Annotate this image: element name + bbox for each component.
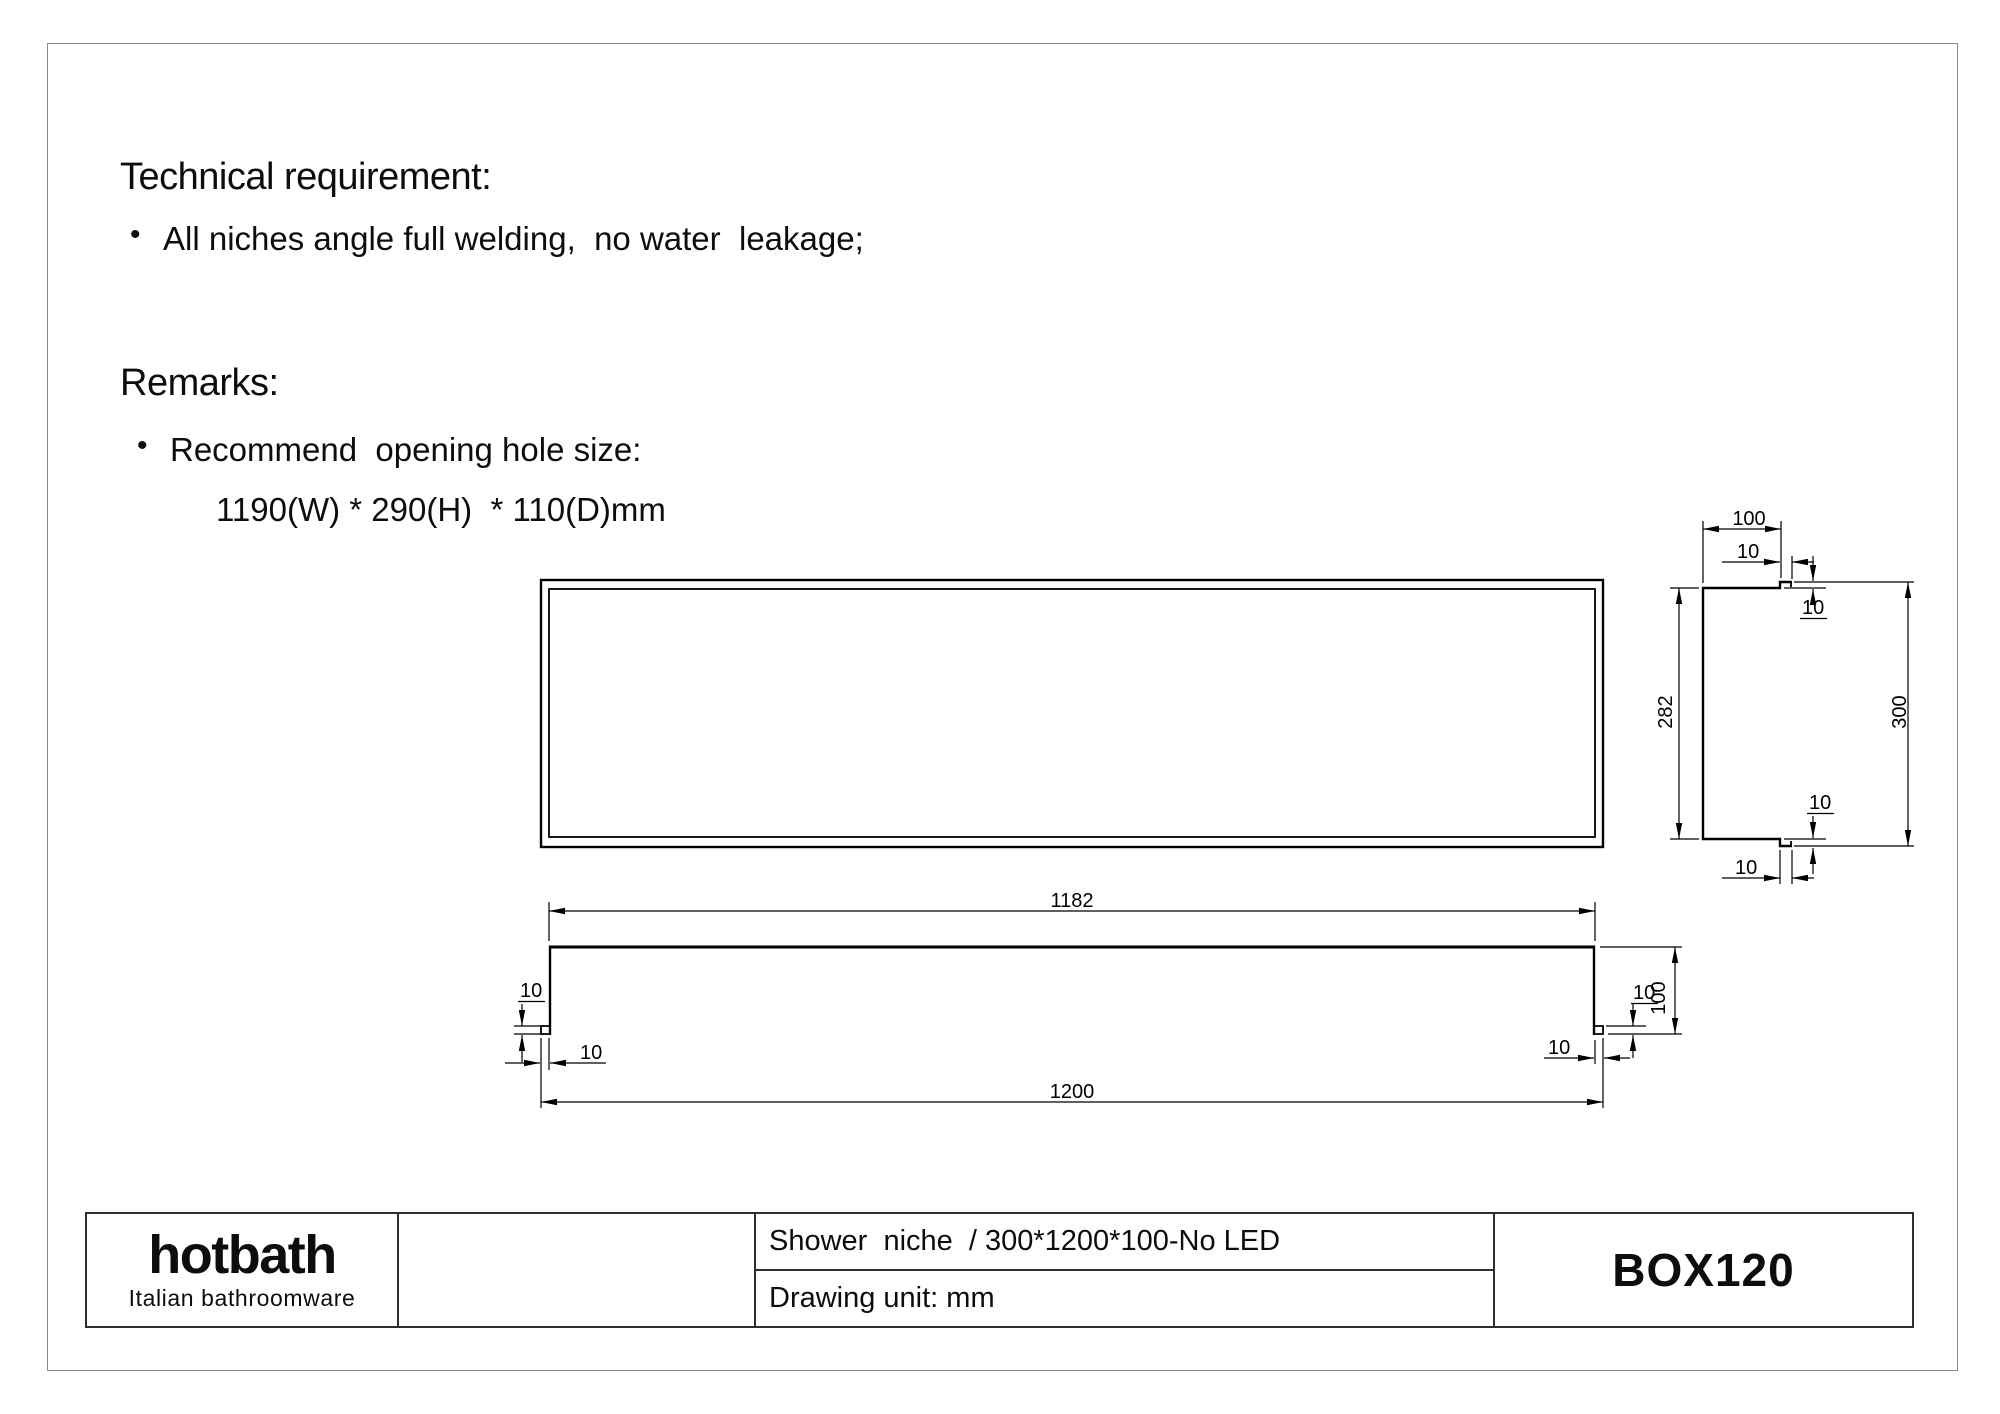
- dimension-label: 100: [1732, 508, 1765, 530]
- side-section-view: [1703, 582, 1792, 846]
- front-view-inner-opening: [549, 589, 1595, 837]
- front-view-outer-frame: [541, 580, 1603, 847]
- dimension-label: 10: [1633, 982, 1655, 1004]
- dimension-label: 1182: [1050, 890, 1093, 912]
- side-profile: [1703, 582, 1792, 846]
- dimension-label: 10: [520, 980, 542, 1002]
- dimension-label: 10: [1735, 857, 1757, 879]
- dimension-label: 300: [1889, 695, 1911, 728]
- title-block-model-cell: BOX120: [1495, 1214, 1912, 1326]
- side-view-dimensions: [1670, 521, 1914, 884]
- dimension-label: 10: [1737, 541, 1759, 563]
- front-view: [541, 580, 1603, 847]
- plan-view: [541, 946, 1603, 1035]
- title-block-description-cell: Shower niche / 300*1200*100-No LED Drawi…: [756, 1214, 1495, 1326]
- plan-view-dimensions: [505, 902, 1682, 1108]
- technical-drawing: 118212001001010101010010102823001010: [0, 0, 2000, 1414]
- product-description: Shower niche / 300*1200*100-No LED: [756, 1214, 1493, 1271]
- title-block-logo-cell: hotbath Italian bathroomware: [87, 1214, 399, 1326]
- dimension-label: 10: [1802, 597, 1824, 619]
- brand-tagline: Italian bathroomware: [129, 1285, 356, 1312]
- title-block-empty-cell: [399, 1214, 756, 1326]
- brand-logo: hotbath: [148, 1228, 335, 1282]
- title-block: hotbath Italian bathroomware Shower nich…: [85, 1212, 1914, 1328]
- dimension-label: 1200: [1050, 1081, 1095, 1103]
- dimension-label: 282: [1655, 695, 1677, 728]
- model-number: BOX120: [1612, 1243, 1794, 1297]
- drawing-unit: Drawing unit: mm: [756, 1271, 1493, 1326]
- dimension-label: 10: [1809, 792, 1831, 814]
- dimension-label: 10: [1548, 1037, 1570, 1059]
- dimension-label: 10: [580, 1042, 602, 1064]
